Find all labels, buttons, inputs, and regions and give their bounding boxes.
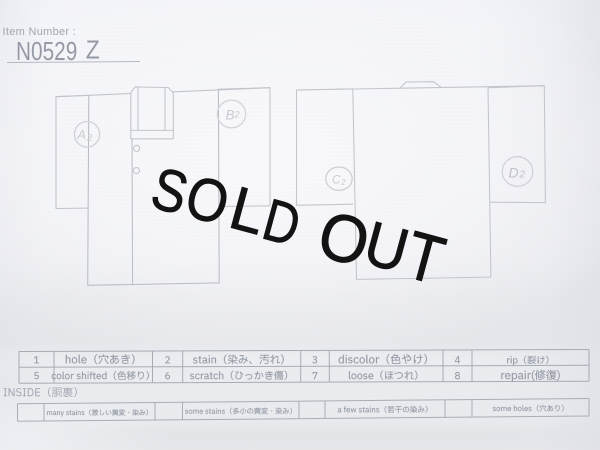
svg-text:2: 2 [86,133,93,144]
svg-text:2: 2 [340,178,346,187]
svg-text:C: C [332,175,341,187]
svg-text:2: 2 [234,110,240,120]
svg-text:B: B [226,108,235,123]
svg-text:A: A [77,128,86,142]
svg-text:2: 2 [519,170,526,181]
svg-text:N0529: N0529 [16,37,77,66]
svg-text:Z: Z [86,36,100,65]
svg-text:D: D [509,165,519,181]
